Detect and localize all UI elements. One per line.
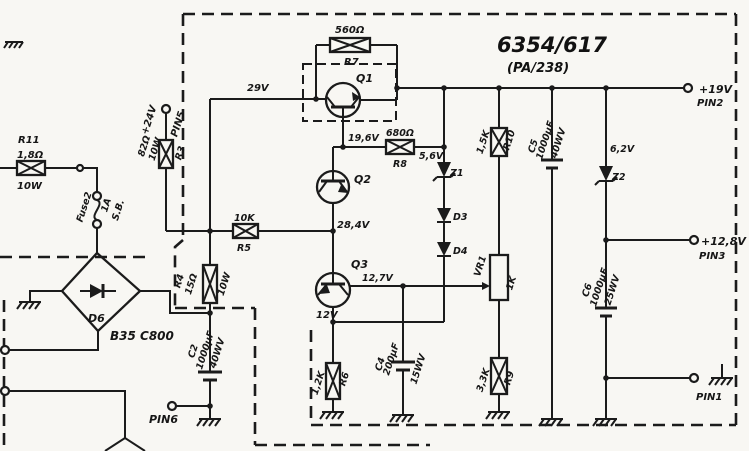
label-r4-power: 10W (216, 271, 234, 297)
wire-winding-v (105, 438, 145, 451)
terminal-ac2 (1, 387, 9, 395)
q3-transistor (316, 273, 350, 307)
labels: 6354/617 (PA/238) R11 1,8Ω 10W Fuse2 1A … (17, 25, 747, 426)
wire-bridge-ac2 (9, 331, 98, 350)
label-r8-value: 680Ω (386, 128, 414, 139)
wires (0, 45, 722, 451)
label-r7-value: 560Ω (335, 25, 365, 36)
q1-transistor (326, 83, 360, 117)
fuse-top-cap (93, 192, 101, 200)
label-d3-name: D3 (453, 212, 468, 223)
title-variant: (PA/238) (507, 61, 569, 76)
label-r9-name: R9 (502, 370, 517, 387)
terminal-pin2 (684, 84, 692, 92)
label-r7-name: R7 (344, 57, 359, 68)
capacitor-c6 (595, 308, 617, 316)
label-c4-rating: 15WV (409, 352, 429, 386)
label-d4-name: D4 (453, 246, 468, 257)
resistor-r7 (330, 38, 370, 52)
label-pin2-name: PIN2 (697, 98, 723, 109)
label-voltage-29: 29V (247, 83, 270, 94)
terminal-pin6 (168, 402, 176, 410)
label-pin2-voltage: +19V (699, 83, 734, 96)
title-model: 6354/617 (497, 33, 607, 57)
fuse-bottom-cap (93, 220, 101, 228)
diode-d3 (437, 208, 451, 222)
terminal-ac1 (1, 346, 9, 354)
wire-ac3 (9, 391, 125, 438)
label-r3-name: R3 (173, 145, 188, 162)
wire-19v6-node (333, 147, 386, 171)
label-q3-name: Q3 (351, 258, 368, 271)
label-r5-value: 10K (234, 213, 255, 224)
wire-r11-fuse (45, 168, 97, 192)
ground-symbol (320, 412, 344, 419)
label-vr1-value: 1K (504, 274, 519, 291)
label-pin5-voltage: +24V (140, 103, 160, 136)
bridge-diode-arrow (90, 284, 103, 298)
label-r5-name: R5 (237, 243, 251, 254)
label-pin6-name: PIN6 (149, 413, 178, 426)
ground-symbol (709, 378, 733, 385)
terminal-r11-node (77, 165, 83, 171)
ground-symbol (197, 419, 221, 426)
label-r11-power: 10W (17, 181, 43, 192)
label-q1-name: Q1 (356, 72, 373, 85)
q2-transistor (317, 171, 349, 203)
label-pin5-name: PIN5 (169, 110, 188, 139)
label-voltage-19v6: 19,6V (348, 133, 379, 144)
transistors (316, 83, 360, 307)
resistor-r8 (386, 140, 414, 154)
label-pin1-name: PIN1 (696, 392, 722, 403)
wire-bridge-ground (30, 291, 62, 302)
terminal-pin5 (162, 105, 170, 113)
label-q2-name: Q2 (354, 173, 371, 186)
terminal-pin1 (690, 374, 698, 382)
schematic-drawing: 6354/617 (PA/238) R11 1,8Ω 10W Fuse2 1A … (0, 0, 749, 451)
label-z2-value: 6,2V (610, 144, 635, 155)
label-d6-part: B35 C800 (110, 329, 174, 343)
schematic-page: 6354/617 (PA/238) R11 1,8Ω 10W Fuse2 1A … (0, 0, 749, 451)
label-r11-value: 1,8Ω (17, 150, 44, 161)
label-d6-name: D6 (88, 312, 105, 325)
label-pin3-name: PIN3 (699, 251, 725, 262)
ground-symbol (486, 412, 510, 419)
capacitor-c2 (198, 372, 222, 380)
label-vr1-name: VR1 (472, 254, 489, 278)
label-r11-name: R11 (18, 135, 40, 146)
label-fuse-name: Fuse2 (75, 190, 95, 223)
label-pin3-voltage: +12,8V (701, 235, 747, 248)
resistor-r5 (233, 224, 258, 238)
label-z2-name: Z2 (611, 172, 626, 183)
ground-symbol (4, 42, 23, 48)
terminal-pin3 (690, 236, 698, 244)
label-z1-name: Z1 (449, 168, 464, 179)
capacitors (198, 160, 617, 380)
resistor-r4 (203, 265, 217, 303)
diode-d4 (437, 242, 451, 256)
label-r8-name: R8 (393, 159, 407, 170)
ground-symbol (17, 302, 41, 309)
ground-symbol (390, 415, 414, 422)
label-voltage-28v4: 28,4V (337, 220, 371, 231)
label-voltage-12v7: 12,7V (362, 273, 393, 284)
label-z1-value: 5,6V (419, 151, 444, 162)
vr1-wiper-arrow (482, 282, 490, 290)
resistor-r11 (17, 161, 45, 175)
label-voltage-12: 12V (316, 310, 339, 321)
